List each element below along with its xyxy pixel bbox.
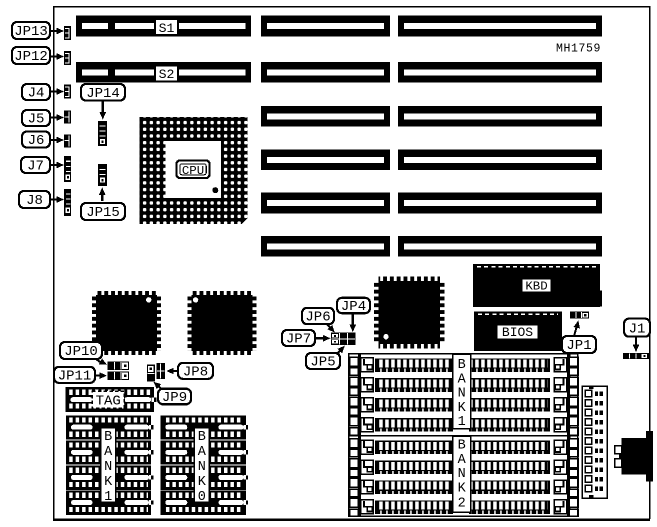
svg-text:A: A — [198, 445, 207, 460]
svg-text:0: 0 — [198, 490, 206, 505]
svg-text:BIOS: BIOS — [502, 325, 533, 340]
svg-text:J1: J1 — [629, 322, 646, 338]
svg-text:JP8: JP8 — [183, 365, 208, 381]
svg-text:J8: J8 — [26, 193, 43, 209]
svg-text:S1: S1 — [159, 21, 175, 36]
svg-text:B: B — [458, 439, 466, 454]
svg-text:K: K — [458, 482, 467, 497]
svg-text:JP11: JP11 — [58, 369, 92, 385]
svg-text:K: K — [104, 475, 113, 490]
svg-text:B: B — [458, 358, 466, 373]
svg-text:N: N — [104, 460, 112, 475]
svg-text:TAG: TAG — [96, 394, 121, 410]
svg-text:CPU: CPU — [182, 164, 204, 178]
svg-text:JP12: JP12 — [14, 49, 48, 65]
svg-text:1: 1 — [458, 415, 466, 430]
svg-text:JP9: JP9 — [162, 390, 187, 406]
svg-text:KBD: KBD — [525, 280, 547, 294]
svg-text:MH1759: MH1759 — [556, 43, 601, 56]
svg-text:JP14: JP14 — [86, 86, 120, 102]
svg-text:JP1: JP1 — [566, 338, 591, 354]
svg-text:A: A — [104, 445, 113, 460]
svg-text:2: 2 — [458, 496, 466, 511]
svg-text:1: 1 — [104, 490, 112, 505]
svg-text:JP10: JP10 — [64, 344, 98, 360]
svg-text:K: K — [458, 401, 467, 416]
svg-text:S2: S2 — [159, 67, 175, 82]
svg-text:JP15: JP15 — [86, 205, 120, 221]
svg-text:N: N — [458, 386, 466, 401]
svg-text:JP4: JP4 — [341, 299, 366, 315]
svg-text:B: B — [104, 430, 112, 445]
svg-text:J7: J7 — [27, 159, 44, 175]
svg-text:J4: J4 — [28, 86, 45, 102]
svg-text:B: B — [198, 430, 206, 445]
svg-text:JP5: JP5 — [310, 355, 335, 371]
svg-text:J5: J5 — [28, 112, 45, 128]
svg-text:JP13: JP13 — [14, 24, 48, 40]
svg-text:JP7: JP7 — [286, 332, 311, 348]
svg-text:N: N — [458, 467, 466, 482]
svg-text:J6: J6 — [28, 133, 45, 149]
svg-text:K: K — [198, 475, 207, 490]
svg-text:N: N — [198, 460, 206, 475]
svg-text:JP6: JP6 — [305, 310, 330, 326]
